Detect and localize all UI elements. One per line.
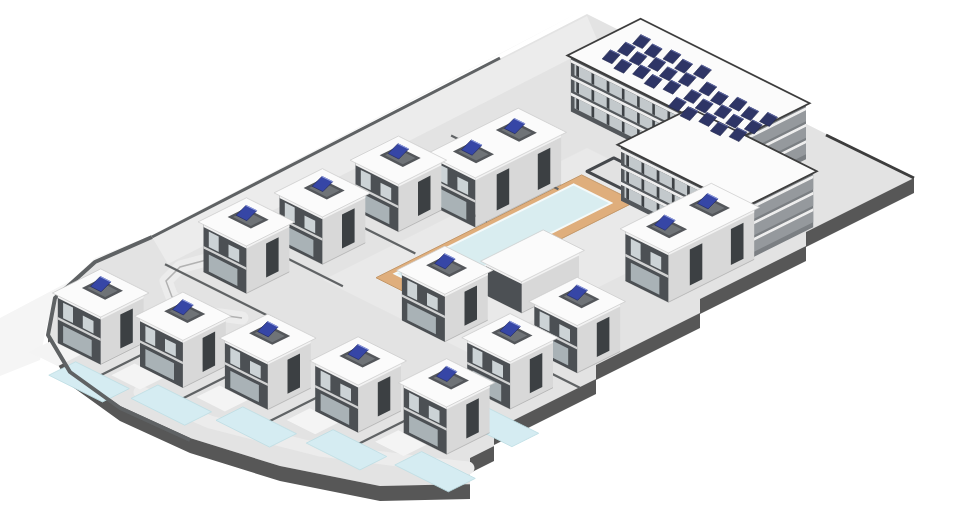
window-band xyxy=(378,376,391,416)
facade-pier xyxy=(592,89,595,101)
facade-pier xyxy=(642,195,645,207)
facade-pier xyxy=(626,188,629,200)
facade-pier xyxy=(576,98,579,110)
facade-pier xyxy=(576,65,579,77)
facade-pier xyxy=(607,113,610,125)
window-band xyxy=(288,354,301,394)
facade-pier xyxy=(657,186,660,198)
window-band xyxy=(203,332,216,372)
window-band xyxy=(690,243,703,285)
facade-pier xyxy=(622,88,625,100)
facade-pier xyxy=(622,104,625,116)
bim-3d-viewport xyxy=(0,0,980,523)
window-band xyxy=(497,168,510,210)
facade-pier xyxy=(637,112,640,124)
window-band xyxy=(538,148,551,190)
window-band xyxy=(530,353,543,393)
facade-pier xyxy=(642,162,645,174)
facade-pier xyxy=(622,121,625,133)
window-band xyxy=(342,208,355,248)
window-band xyxy=(731,223,744,265)
window-band xyxy=(266,237,279,277)
facade-pier xyxy=(592,106,595,118)
facade-pier xyxy=(607,80,610,92)
facade-pier xyxy=(642,179,645,191)
facade-pier xyxy=(576,82,579,94)
facade-pier xyxy=(672,177,675,189)
window-band xyxy=(465,286,478,326)
facade-pier xyxy=(637,96,640,108)
window-band xyxy=(120,308,133,348)
facade-pier xyxy=(607,97,610,109)
window-band xyxy=(597,317,610,357)
facade-pier xyxy=(626,155,629,167)
facade-pier xyxy=(626,171,629,183)
window-band xyxy=(418,176,431,216)
facade-pier xyxy=(592,73,595,85)
facade-pier xyxy=(652,103,655,115)
window-band xyxy=(466,398,479,438)
isometric-site-model xyxy=(0,0,980,523)
facade-pier xyxy=(657,170,660,182)
